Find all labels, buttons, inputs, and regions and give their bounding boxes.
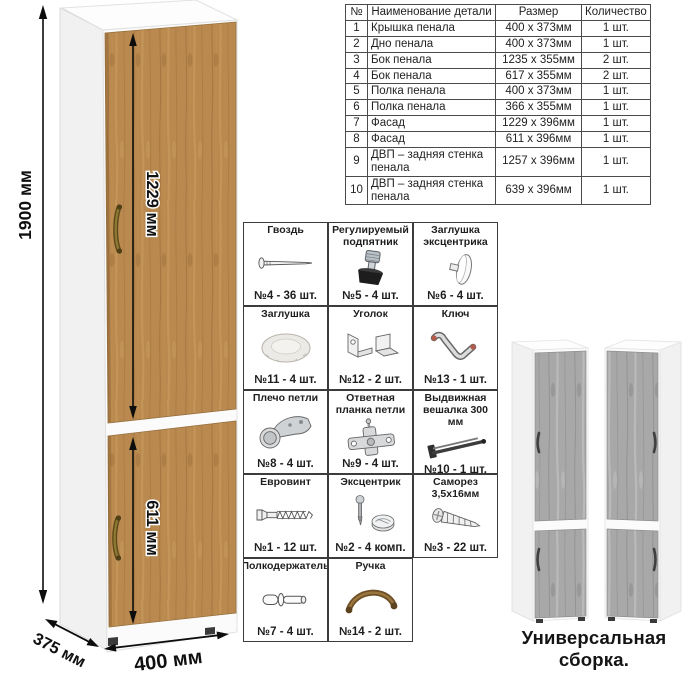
hardware-grid: Гвоздь №4 - 36 шт. Регулируемый подпятни… <box>243 222 498 642</box>
part-num: 5 <box>346 84 368 100</box>
dim-height-label: 1900 мм <box>15 170 35 240</box>
part-size: 400 х 373мм <box>496 84 582 100</box>
hardware-qty: №7 - 4 шт. <box>257 626 313 638</box>
part-size: 1257 х 396мм <box>496 147 582 176</box>
euro-screw-icon <box>253 500 319 530</box>
hinge-plate-icon <box>339 417 403 457</box>
variant-foot <box>608 617 615 621</box>
hardware-title: Заглушка <box>261 309 310 321</box>
hardware-item-euro-screw: Евровинт №1 - 12 шт. <box>243 474 328 558</box>
variant-left-lower-door <box>535 529 586 618</box>
hardware-title: Уголок <box>353 309 388 321</box>
dim-upper-door-label: 1229 мм <box>143 171 161 237</box>
hardware-qty: №9 - 4 шт. <box>342 458 398 470</box>
hardware-item-hinge-arm: Плечо петли №8 - 4 шт. <box>243 390 328 474</box>
hardware-item-eccentric-cap: Заглушка эксцентрика №6 - 4 шт. <box>413 222 498 306</box>
hardware-qty: №13 - 1 шт. <box>424 374 487 386</box>
part-name: Полка пенала <box>368 84 496 100</box>
eccentric-cap-icon <box>428 249 484 289</box>
cabinet-foot <box>108 637 118 646</box>
dim-depth-label: 375 мм <box>30 630 89 672</box>
hardware-qty: №1 - 12 шт. <box>254 542 317 554</box>
hardware-title: Ключ <box>442 309 470 321</box>
hardware-title: Саморез 3,5х16мм <box>415 477 496 501</box>
part-qty: 1 шт. <box>582 36 651 52</box>
part-size: 639 х 396мм <box>496 176 582 205</box>
part-size: 617 х 355мм <box>496 68 582 84</box>
part-num: 8 <box>346 132 368 148</box>
table-row: 5Полка пенала400 х 373мм1 шт. <box>346 84 651 100</box>
adjustable-foot-icon <box>342 249 400 289</box>
part-num: 7 <box>346 116 368 132</box>
part-size: 400 х 373мм <box>496 20 582 36</box>
hardware-item-plug-cap: Заглушка №11 - 4 шт. <box>243 306 328 390</box>
variant-right-lower-door <box>607 529 658 618</box>
hinge-arm-icon <box>254 410 318 452</box>
variant-right-upper-door <box>607 351 658 521</box>
part-num: 9 <box>346 147 368 176</box>
part-name: Дно пенала <box>368 36 496 52</box>
part-size: 366 х 355мм <box>496 100 582 116</box>
hardware-title: Заглушка эксцентрика <box>415 225 496 249</box>
part-qty: 1 шт. <box>582 147 651 176</box>
variants-illustration <box>493 330 700 626</box>
table-row: 6Полка пенала366 х 355мм1 шт. <box>346 100 651 116</box>
table-row: 8Фасад611 х 396мм1 шт. <box>346 132 651 148</box>
variant-foot <box>536 619 543 623</box>
assembly-sheet: 1900 мм 1229 мм 611 мм 400 мм 375 мм <box>0 0 700 683</box>
variant-cabinet-left <box>512 340 588 623</box>
part-num: 4 <box>346 68 368 84</box>
table-row: 4Бок пенала617 х 355мм2 шт. <box>346 68 651 84</box>
handle-icon <box>339 579 403 619</box>
key-icon <box>424 326 488 368</box>
part-num: 2 <box>346 36 368 52</box>
hardware-item-self-tapping-screw: Саморез 3,5х16мм №3 - 22 шт. <box>413 474 498 558</box>
variant-cabinet-right <box>605 340 681 623</box>
self-tapping-screw-icon <box>425 502 487 540</box>
table-row: 2Дно пенала400 х 373мм1 шт. <box>346 36 651 52</box>
variant-right-side-panel <box>660 342 681 621</box>
hardware-item-handle: Ручка №14 - 2 шт. <box>328 558 413 642</box>
part-qty: 1 шт. <box>582 100 651 116</box>
variants-caption: Универсальная сборка. <box>488 627 700 671</box>
part-size: 400 х 373мм <box>496 36 582 52</box>
hardware-qty: №10 - 1 шт. <box>424 464 487 474</box>
part-num: 1 <box>346 20 368 36</box>
variant-foot <box>578 617 585 621</box>
part-name: Фасад <box>368 132 496 148</box>
hardware-title: Плечо петли <box>253 393 318 405</box>
hardware-title: Регулируемый подпятник <box>330 225 411 249</box>
part-name: Полка пенала <box>368 100 496 116</box>
lower-door-edge <box>110 436 111 626</box>
hardware-item-eccentric-cam: Эксцентрик №2 - 4 комп. <box>328 474 413 558</box>
hardware-qty: №11 - 4 шт. <box>254 374 316 386</box>
part-qty: 2 шт. <box>582 52 651 68</box>
cabinet-foot <box>205 627 215 635</box>
part-qty: 1 шт. <box>582 176 651 205</box>
table-row: 3Бок пенала1235 х 355мм2 шт. <box>346 52 651 68</box>
part-name: Крышка пенала <box>368 20 496 36</box>
variant-left-upper-door <box>535 351 586 521</box>
hardware-item-key: Ключ №13 - 1 шт. <box>413 306 498 390</box>
hardware-item-adjustable-foot: Регулируемый подпятник №5 - 4 шт. <box>328 222 413 306</box>
cabinet-illustration: 1900 мм 1229 мм 611 мм 400 мм 375 мм <box>0 0 240 683</box>
hardware-qty: №2 - 4 комп. <box>335 542 405 554</box>
plug-cap-icon <box>253 327 319 367</box>
dim-width-label: 400 мм <box>133 646 204 676</box>
variant-left-side-panel <box>512 342 533 621</box>
part-name: Бок пенала <box>368 68 496 84</box>
part-num: 6 <box>346 100 368 116</box>
variant-right-lower-handle <box>654 549 656 570</box>
hardware-title: Выдвижная вешалка 300 мм <box>415 393 496 428</box>
nail-icon <box>254 246 318 280</box>
hardware-qty: №6 - 4 шт. <box>427 290 483 302</box>
table-row: 1Крышка пенала400 х 373мм1 шт. <box>346 20 651 36</box>
table-row: 9ДВП – задняя стенка пенала1257 х 396мм1… <box>346 147 651 176</box>
part-size: 1229 х 396мм <box>496 116 582 132</box>
col-header-name: Наименование детали <box>368 5 496 21</box>
part-size: 611 х 396мм <box>496 132 582 148</box>
hardware-item-hinge-plate: Ответная планка петли №9 - 4 шт. <box>328 390 413 474</box>
table-row: 7Фасад1229 х 396мм1 шт. <box>346 116 651 132</box>
hardware-qty: №12 - 2 шт. <box>339 374 402 386</box>
col-header-num: № <box>346 5 368 21</box>
lower-door <box>108 421 236 627</box>
table-row: 10ДВП – задняя стенка пенала639 х 396мм1… <box>346 176 651 205</box>
part-num: 10 <box>346 176 368 205</box>
hardware-qty: №8 - 4 шт. <box>257 458 313 470</box>
part-qty: 2 шт. <box>582 68 651 84</box>
variant-right-upper-handle <box>654 433 656 452</box>
hardware-qty: №3 - 22 шт. <box>424 542 487 554</box>
dim-height <box>39 5 47 604</box>
hardware-title: Ответная планка петли <box>330 393 411 417</box>
part-name: ДВП – задняя стенка пенала <box>368 147 496 176</box>
part-qty: 1 шт. <box>582 116 651 132</box>
hardware-title: Полкодержатель <box>243 561 328 573</box>
pullout-hanger-icon <box>423 428 489 464</box>
part-qty: 1 шт. <box>582 84 651 100</box>
part-name: Бок пенала <box>368 52 496 68</box>
hardware-item-nail: Гвоздь №4 - 36 шт. <box>243 222 328 306</box>
dim-lower-door-label: 611 мм <box>143 500 161 556</box>
hardware-title: Евровинт <box>260 477 311 489</box>
variant-left-upper-handle <box>538 433 540 452</box>
variant-foot <box>650 619 657 623</box>
hardware-item-pullout-hanger: Выдвижная вешалка 300 мм №10 - 1 шт. <box>413 390 498 474</box>
part-name: ДВП – задняя стенка пенала <box>368 176 496 205</box>
corner-bracket-icon <box>339 326 403 368</box>
cabinet-side-panel <box>60 8 107 650</box>
hardware-qty: №5 - 4 шт. <box>342 290 398 302</box>
part-qty: 1 шт. <box>582 20 651 36</box>
part-num: 3 <box>346 52 368 68</box>
table-header-row: № Наименование детали Размер Количество <box>346 5 651 21</box>
part-size: 1235 х 355мм <box>496 52 582 68</box>
variant-left-lower-handle <box>538 549 540 570</box>
eccentric-cam-icon <box>340 494 402 536</box>
part-name: Фасад <box>368 116 496 132</box>
hardware-item-shelf-pin: Полкодержатель №7 - 4 шт. <box>243 558 328 642</box>
part-qty: 1 шт. <box>582 132 651 148</box>
col-header-size: Размер <box>496 5 582 21</box>
hardware-title: Гвоздь <box>267 225 304 237</box>
col-header-qty: Количество <box>582 5 651 21</box>
hardware-item-corner-bracket: Уголок №12 - 2 шт. <box>328 306 413 390</box>
hardware-title: Эксцентрик <box>340 477 400 489</box>
shelf-pin-icon <box>256 584 316 614</box>
hardware-qty: №14 - 2 шт. <box>339 626 402 638</box>
hardware-qty: №4 - 36 шт. <box>254 290 317 302</box>
hardware-title: Ручка <box>355 561 385 573</box>
upper-door <box>105 22 236 423</box>
parts-table: № Наименование детали Размер Количество … <box>345 4 651 205</box>
